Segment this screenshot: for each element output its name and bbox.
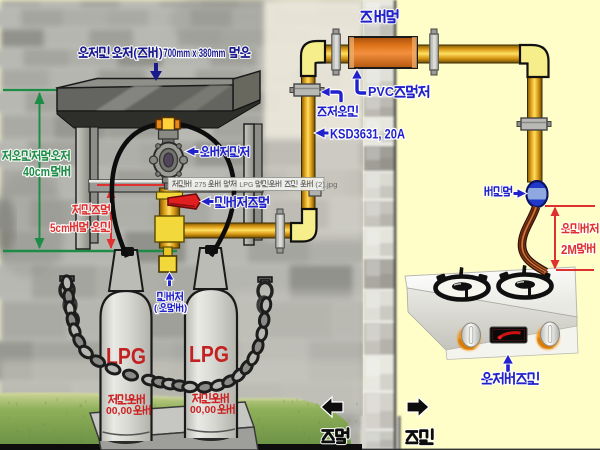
svg-text:(: ( bbox=[133, 48, 137, 60]
svg-text:275: 275 bbox=[194, 180, 206, 189]
svg-text:): ) bbox=[184, 303, 187, 314]
svg-text:KSD3631, 20A: KSD3631, 20A bbox=[330, 127, 405, 142]
svg-text:00,00: 00,00 bbox=[106, 406, 132, 417]
svg-text:700mm x 380mm: 700mm x 380mm bbox=[163, 48, 225, 60]
svg-text:2M: 2M bbox=[561, 243, 577, 257]
svg-text:PVC: PVC bbox=[368, 84, 395, 99]
svg-text:40cm: 40cm bbox=[23, 165, 50, 179]
svg-text:LPG: LPG bbox=[239, 180, 253, 189]
svg-text:): ) bbox=[159, 48, 163, 60]
svg-text:(2).jpg: (2).jpg bbox=[315, 180, 337, 189]
svg-text:5cm: 5cm bbox=[50, 221, 70, 235]
svg-text:00,00: 00,00 bbox=[190, 405, 216, 416]
svg-text:LPG: LPG bbox=[189, 341, 229, 367]
